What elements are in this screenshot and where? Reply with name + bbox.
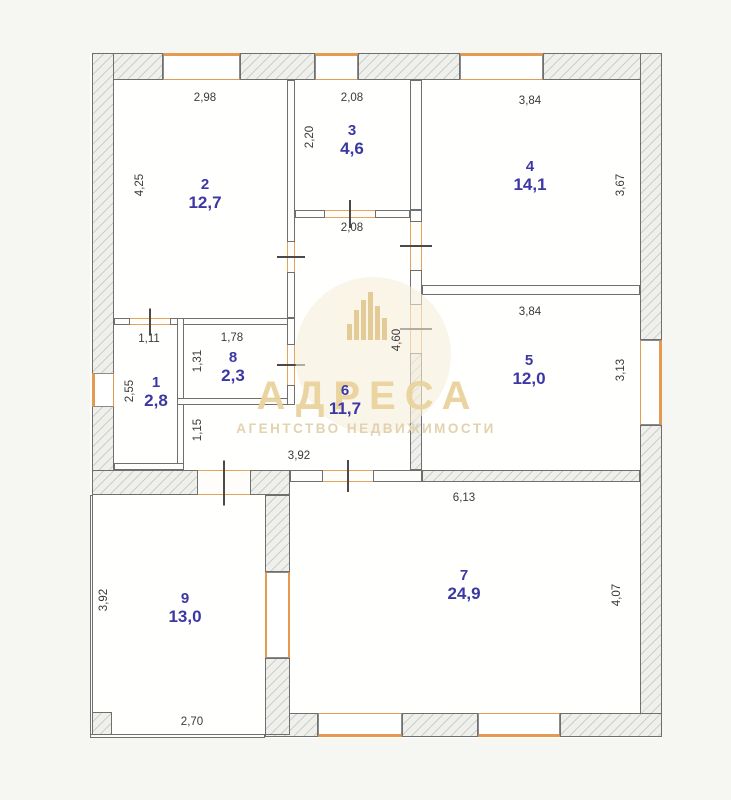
dimension-label: 2,55 bbox=[124, 380, 136, 402]
room-area: 24,9 bbox=[447, 584, 480, 604]
building-floor bbox=[90, 53, 662, 738]
dimension-label: 4,25 bbox=[134, 174, 146, 196]
interior-wall-segment bbox=[177, 398, 295, 405]
interior-wall-segment bbox=[422, 285, 640, 295]
window bbox=[265, 572, 290, 658]
room-label-8: 82,3 bbox=[221, 349, 245, 386]
dimension-label: 2,20 bbox=[304, 126, 316, 148]
exterior-wall-segment bbox=[410, 353, 422, 470]
dimension-label: 2,08 bbox=[341, 222, 363, 234]
room-label-7: 724,9 bbox=[447, 567, 480, 604]
room-area: 12,7 bbox=[188, 193, 221, 213]
interior-wall-segment bbox=[290, 470, 323, 482]
interior-wall-segment bbox=[287, 80, 295, 242]
door-tick bbox=[277, 256, 305, 258]
interior-wall-segment bbox=[287, 272, 295, 318]
room-label-5: 512,0 bbox=[512, 352, 545, 389]
exterior-wall-segment bbox=[358, 53, 460, 80]
window bbox=[315, 53, 358, 80]
dimension-label: 3,13 bbox=[615, 359, 627, 381]
door-opening bbox=[130, 318, 170, 325]
interior-wall-segment bbox=[373, 470, 422, 482]
door-opening bbox=[325, 210, 375, 218]
room-number: 4 bbox=[513, 158, 546, 175]
dimension-label: 1,11 bbox=[138, 333, 160, 345]
interior-wall-segment bbox=[170, 318, 295, 325]
room-label-1: 12,8 bbox=[144, 374, 168, 411]
door-tick bbox=[149, 308, 151, 335]
window bbox=[318, 713, 402, 737]
interior-wall-segment bbox=[177, 318, 184, 470]
dimension-label: 1,78 bbox=[221, 332, 243, 344]
dimension-label: 4,07 bbox=[611, 584, 623, 606]
exterior-wall-segment bbox=[240, 53, 315, 80]
dimension-label: 1,31 bbox=[192, 350, 204, 372]
door-opening bbox=[198, 470, 250, 495]
exterior-wall-segment bbox=[265, 658, 290, 735]
interior-wall-segment bbox=[90, 734, 265, 738]
room-number: 3 bbox=[340, 122, 364, 139]
interior-wall-segment bbox=[410, 80, 422, 210]
room-number: 6 bbox=[329, 382, 361, 399]
exterior-wall-segment bbox=[265, 495, 290, 572]
dimension-label: 1,15 bbox=[192, 419, 204, 441]
room-label-2: 212,7 bbox=[188, 176, 221, 213]
door-opening bbox=[287, 242, 295, 272]
dimension-label: 3,84 bbox=[519, 306, 541, 318]
room-label-9: 913,0 bbox=[168, 590, 201, 627]
door-opening bbox=[323, 470, 373, 482]
exterior-wall-segment bbox=[422, 470, 640, 482]
door-tick bbox=[400, 328, 432, 330]
room-area: 11,7 bbox=[329, 399, 361, 419]
interior-wall-segment bbox=[410, 270, 422, 305]
exterior-wall-segment bbox=[92, 470, 198, 495]
door-opening bbox=[287, 345, 295, 385]
exterior-wall-segment bbox=[92, 53, 114, 375]
window bbox=[163, 53, 240, 80]
exterior-wall-segment bbox=[560, 713, 662, 737]
room-area: 12,0 bbox=[512, 369, 545, 389]
interior-wall-segment bbox=[287, 385, 295, 405]
room-area: 13,0 bbox=[168, 607, 201, 627]
room-label-3: 34,6 bbox=[340, 122, 364, 159]
room-label-4: 414,1 bbox=[513, 158, 546, 195]
door-tick bbox=[277, 364, 305, 366]
door-opening bbox=[410, 305, 422, 353]
window bbox=[640, 340, 662, 425]
room-area: 4,6 bbox=[340, 139, 364, 159]
floor-plan-image: 212,734,6414,1512,0611,712,882,3724,9913… bbox=[0, 0, 731, 800]
interior-wall-segment bbox=[114, 463, 184, 470]
window bbox=[460, 53, 543, 80]
interior-wall-segment bbox=[295, 210, 325, 218]
dimension-label: 6,13 bbox=[453, 492, 475, 504]
interior-wall-segment bbox=[114, 318, 130, 325]
dimension-label: 4,60 bbox=[391, 329, 403, 351]
room-label-6: 611,7 bbox=[329, 382, 361, 419]
room-area: 2,8 bbox=[144, 391, 168, 411]
dimension-label: 3,67 bbox=[615, 174, 627, 196]
room-number: 5 bbox=[512, 352, 545, 369]
window bbox=[92, 373, 114, 407]
dimension-label: 2,98 bbox=[194, 92, 216, 104]
interior-wall-segment bbox=[375, 210, 410, 218]
room-number: 1 bbox=[144, 374, 168, 391]
exterior-wall-segment bbox=[250, 470, 290, 495]
dimension-label: 3,84 bbox=[519, 95, 541, 107]
exterior-wall-segment bbox=[640, 425, 662, 735]
door-opening bbox=[410, 222, 422, 270]
room-number: 2 bbox=[188, 176, 221, 193]
room-number: 8 bbox=[221, 349, 245, 366]
window bbox=[478, 713, 560, 737]
room-area: 14,1 bbox=[513, 175, 546, 195]
exterior-wall-segment bbox=[640, 53, 662, 340]
dimension-label: 3,92 bbox=[288, 450, 310, 462]
interior-wall-segment bbox=[287, 318, 295, 345]
interior-wall-segment bbox=[90, 495, 93, 735]
room-number: 9 bbox=[168, 590, 201, 607]
door-tick bbox=[347, 460, 349, 492]
dimension-label: 2,08 bbox=[341, 92, 363, 104]
room-area: 2,3 bbox=[221, 366, 245, 386]
dimension-label: 3,92 bbox=[98, 589, 110, 611]
door-tick bbox=[223, 460, 225, 505]
room-number: 7 bbox=[447, 567, 480, 584]
door-tick bbox=[400, 245, 432, 247]
dimension-label: 2,70 bbox=[181, 716, 203, 728]
floor-plan: 212,734,6414,1512,0611,712,882,3724,9913… bbox=[0, 0, 731, 800]
exterior-wall-segment bbox=[402, 713, 478, 737]
interior-wall-segment bbox=[410, 210, 422, 222]
